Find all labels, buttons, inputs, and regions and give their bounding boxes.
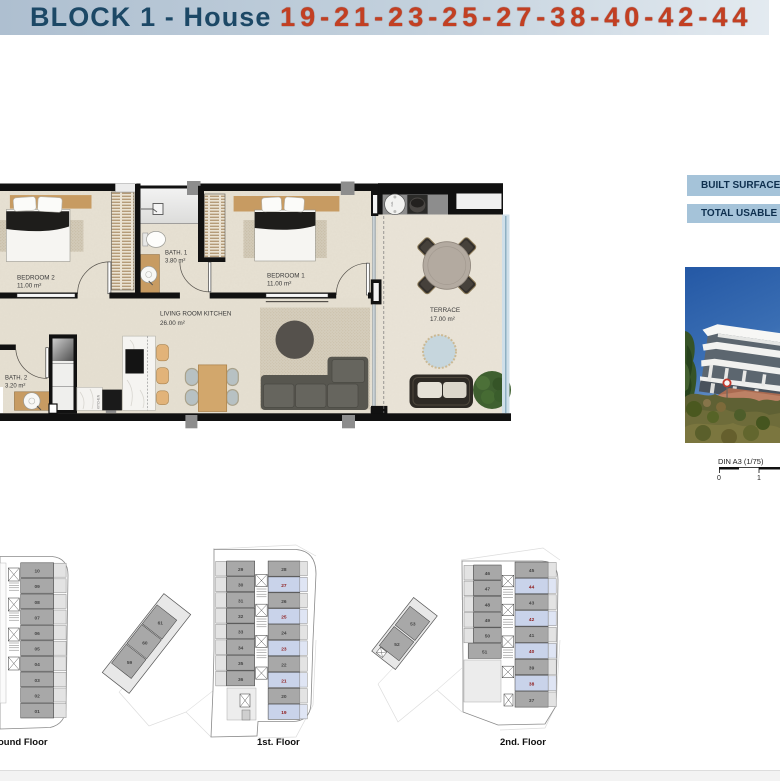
svg-text:BEDROOM 1: BEDROOM 1 (267, 273, 305, 280)
svg-text:31: 31 (238, 598, 244, 604)
svg-text:33: 33 (238, 630, 244, 636)
svg-text:49: 49 (485, 618, 491, 624)
svg-text:37: 37 (529, 698, 535, 704)
svg-text:44: 44 (529, 584, 535, 590)
svg-text:02: 02 (35, 693, 41, 699)
svg-text:BATH. 2: BATH. 2 (5, 376, 28, 382)
svg-text:29: 29 (238, 567, 244, 573)
svg-text:61: 61 (158, 621, 164, 627)
svg-text:LIVING ROOM KITCHEN: LIVING ROOM KITCHEN (160, 311, 232, 318)
svg-text:35: 35 (238, 661, 244, 667)
svg-text:53: 53 (410, 622, 416, 628)
svg-text:BATH. 1: BATH. 1 (165, 251, 188, 257)
svg-text:04: 04 (35, 662, 41, 668)
svg-text:05: 05 (35, 647, 41, 653)
svg-text:10: 10 (35, 569, 41, 575)
svg-text:KITCHEN: KITCHEN (97, 394, 101, 409)
svg-text:27: 27 (281, 583, 287, 589)
svg-text:22: 22 (281, 662, 287, 668)
svg-text:32: 32 (238, 614, 244, 620)
svg-text:60: 60 (142, 640, 148, 646)
svg-text:2nd. Floor: 2nd. Floor (500, 737, 546, 748)
svg-text:36: 36 (238, 677, 244, 683)
svg-text:CAL: CAL (390, 201, 394, 207)
svg-text:34: 34 (238, 645, 244, 651)
svg-text:48: 48 (485, 602, 491, 608)
svg-text:BEDROOM 2: BEDROOM 2 (17, 275, 55, 282)
svg-text:03: 03 (35, 678, 41, 684)
svg-text:07: 07 (35, 615, 41, 621)
svg-text:17.00 m²: 17.00 m² (430, 316, 455, 323)
svg-text:21: 21 (281, 678, 287, 684)
svg-text:08: 08 (35, 600, 41, 606)
svg-text:06: 06 (35, 631, 41, 637)
svg-text:46: 46 (485, 571, 491, 577)
svg-text:3.80 m²: 3.80 m² (165, 259, 185, 265)
svg-text:47: 47 (485, 587, 491, 593)
svg-text:45: 45 (529, 568, 535, 574)
svg-text:09: 09 (35, 584, 41, 590)
svg-text:30: 30 (238, 583, 244, 589)
svg-text:TERRACE: TERRACE (430, 307, 460, 314)
svg-text:41: 41 (529, 633, 535, 639)
svg-text:59: 59 (127, 660, 133, 666)
svg-text:40: 40 (529, 649, 535, 655)
svg-text:51: 51 (482, 649, 488, 655)
svg-text:43: 43 (529, 601, 535, 607)
svg-text:1: 1 (757, 475, 761, 482)
svg-text:28: 28 (281, 567, 287, 573)
svg-text:0: 0 (717, 475, 721, 482)
svg-text:42: 42 (529, 617, 535, 623)
svg-text:50: 50 (485, 634, 491, 640)
svg-text:11.00 m²: 11.00 m² (17, 283, 41, 290)
svg-text:52: 52 (394, 642, 400, 648)
svg-text:26: 26 (281, 599, 287, 605)
svg-text:23: 23 (281, 647, 287, 653)
svg-text:39: 39 (529, 665, 535, 671)
svg-text:20: 20 (281, 694, 287, 700)
svg-text:11.00 m²: 11.00 m² (267, 281, 291, 288)
svg-text:24: 24 (281, 631, 287, 637)
svg-text:38: 38 (529, 682, 535, 688)
svg-text:19: 19 (281, 710, 287, 716)
svg-text:01: 01 (35, 709, 41, 715)
svg-text:1st. Floor: 1st. Floor (257, 737, 300, 748)
svg-text:25: 25 (281, 615, 287, 621)
svg-text:26.00 m²: 26.00 m² (160, 320, 185, 327)
svg-text:3.20 m²: 3.20 m² (5, 384, 25, 390)
svg-text:ound Floor: ound Floor (0, 737, 48, 748)
